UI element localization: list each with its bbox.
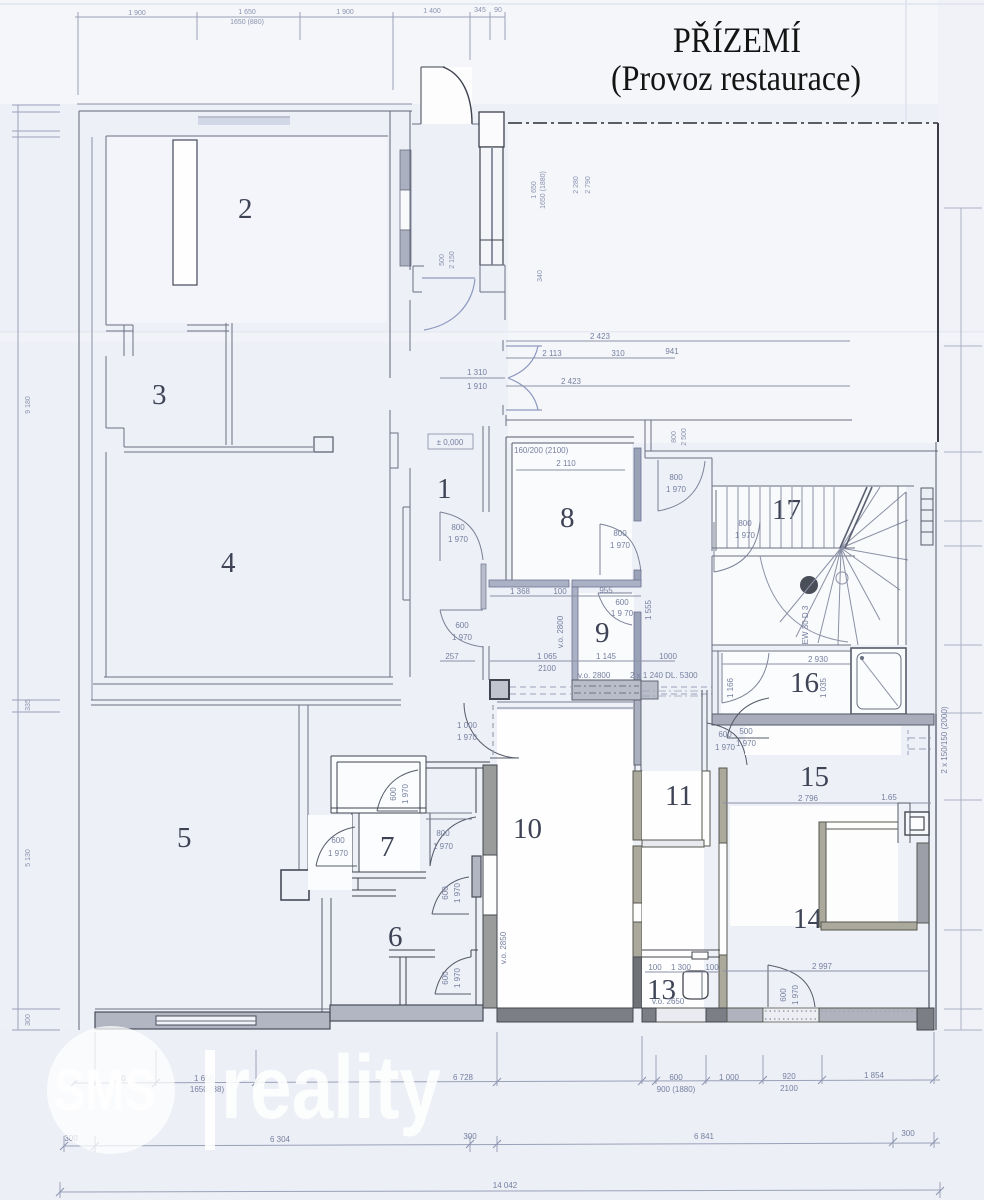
svg-text:PŘÍZEMÍ: PŘÍZEMÍ xyxy=(673,20,801,60)
svg-text:300: 300 xyxy=(463,1132,477,1141)
svg-text:1650 (880): 1650 (880) xyxy=(230,19,264,26)
svg-text:1 970: 1 970 xyxy=(715,743,736,752)
svg-text:2 930: 2 930 xyxy=(808,655,829,664)
svg-text:1 970: 1 970 xyxy=(457,733,478,742)
svg-text:100: 100 xyxy=(705,963,719,972)
svg-text:8: 8 xyxy=(560,502,575,534)
svg-text:1 065: 1 065 xyxy=(537,652,558,661)
svg-text:2 423: 2 423 xyxy=(561,377,582,386)
svg-text:2100: 2100 xyxy=(780,1084,798,1093)
svg-text:2 796: 2 796 xyxy=(798,794,819,803)
svg-text:600: 600 xyxy=(615,598,629,607)
svg-text:1 300: 1 300 xyxy=(671,963,692,972)
svg-text:5: 5 xyxy=(177,822,192,854)
svg-text:1 035: 1 035 xyxy=(819,677,828,698)
svg-text:800: 800 xyxy=(451,523,465,532)
svg-text:600: 600 xyxy=(441,886,450,900)
svg-text:1 145: 1 145 xyxy=(596,652,617,661)
svg-text:941: 941 xyxy=(665,347,679,356)
svg-text:v.o. 2800: v.o. 2800 xyxy=(578,671,611,680)
svg-text:10: 10 xyxy=(513,813,542,845)
svg-text:6: 6 xyxy=(388,921,403,953)
svg-text:1 910: 1 910 xyxy=(467,382,488,391)
svg-text:1 9 70: 1 9 70 xyxy=(611,609,634,618)
svg-text:1 900: 1 900 xyxy=(336,9,354,16)
svg-text:1 970: 1 970 xyxy=(453,967,462,988)
svg-text:345: 345 xyxy=(474,7,486,14)
svg-text:600: 600 xyxy=(331,836,345,845)
svg-text:1 650: 1 650 xyxy=(531,181,538,199)
svg-text:1 310: 1 310 xyxy=(467,368,488,377)
svg-text:600: 600 xyxy=(455,621,469,630)
svg-text:2 500: 2 500 xyxy=(681,428,688,446)
svg-text:1 368: 1 368 xyxy=(510,587,531,596)
svg-text:300: 300 xyxy=(901,1129,915,1138)
svg-text:2 997: 2 997 xyxy=(812,962,833,971)
svg-text:(Provoz restaurace): (Provoz restaurace) xyxy=(611,58,861,98)
svg-text:11: 11 xyxy=(665,780,693,812)
svg-text:2 x 150/150 (2000): 2 x 150/150 (2000) xyxy=(940,706,949,773)
svg-text:SMS: SMS xyxy=(54,1058,156,1123)
svg-text:100: 100 xyxy=(553,587,567,596)
svg-text:1 970: 1 970 xyxy=(666,485,687,494)
svg-text:9 180: 9 180 xyxy=(25,396,32,414)
svg-text:500: 500 xyxy=(739,727,753,736)
svg-text:3: 3 xyxy=(152,379,167,411)
svg-text:5 130: 5 130 xyxy=(25,849,32,867)
svg-text:2 110: 2 110 xyxy=(556,459,576,468)
svg-text:1 555: 1 555 xyxy=(644,599,653,620)
svg-text:2 423: 2 423 xyxy=(590,332,611,341)
svg-text:v.o. 2650: v.o. 2650 xyxy=(652,997,685,1006)
svg-text:1 970: 1 970 xyxy=(453,882,462,903)
svg-text:600: 600 xyxy=(441,971,450,985)
svg-text:300: 300 xyxy=(25,1014,32,1026)
svg-text:955: 955 xyxy=(599,586,613,595)
svg-text:335: 335 xyxy=(25,699,32,711)
svg-text:1 970: 1 970 xyxy=(448,535,469,544)
svg-text:2 790: 2 790 xyxy=(585,176,592,194)
svg-text:1 970: 1 970 xyxy=(328,849,349,858)
svg-text:1 970: 1 970 xyxy=(401,783,410,804)
svg-text:2 113: 2 113 xyxy=(542,349,562,358)
svg-text:100: 100 xyxy=(648,963,662,972)
svg-text:1.65: 1.65 xyxy=(881,793,897,802)
svg-text:800: 800 xyxy=(671,431,678,443)
svg-text:9: 9 xyxy=(595,617,610,649)
svg-text:1 970: 1 970 xyxy=(610,541,631,550)
svg-text:2: 2 xyxy=(238,193,253,225)
svg-text:1650 (1880): 1650 (1880) xyxy=(540,171,547,209)
svg-text:600: 600 xyxy=(389,787,398,801)
svg-text:900 (1880): 900 (1880) xyxy=(657,1085,696,1094)
svg-text:1 970: 1 970 xyxy=(433,842,454,851)
svg-text:600: 600 xyxy=(669,1073,683,1082)
svg-text:800: 800 xyxy=(613,529,627,538)
svg-text:v.o. 2800: v.o. 2800 xyxy=(556,615,565,648)
svg-text:500: 500 xyxy=(439,254,446,266)
svg-text:14 042: 14 042 xyxy=(493,1181,518,1190)
svg-text:257: 257 xyxy=(445,652,459,661)
svg-text:1 166: 1 166 xyxy=(726,677,735,698)
svg-text:1 970: 1 970 xyxy=(735,531,756,540)
svg-text:EW 30 D 3: EW 30 D 3 xyxy=(801,605,810,644)
svg-text:6 841: 6 841 xyxy=(694,1132,715,1141)
svg-text:v.o. 2850: v.o. 2850 xyxy=(499,931,508,964)
svg-text:600: 600 xyxy=(779,988,788,1002)
svg-text:16: 16 xyxy=(790,667,819,699)
svg-text:310: 310 xyxy=(611,349,625,358)
svg-text:1 854: 1 854 xyxy=(864,1071,885,1080)
svg-text:2100: 2100 xyxy=(538,664,556,673)
svg-text:90: 90 xyxy=(494,7,502,14)
svg-text:160/200 (2100): 160/200 (2100) xyxy=(514,446,569,455)
svg-text:1 400: 1 400 xyxy=(423,8,441,15)
svg-text:4: 4 xyxy=(221,547,236,579)
svg-text:920: 920 xyxy=(782,1072,796,1081)
svg-text:340: 340 xyxy=(537,270,544,282)
svg-text:800: 800 xyxy=(436,829,450,838)
svg-text:1 000: 1 000 xyxy=(719,1073,740,1082)
svg-text:2 x 1 240 DL. 5300: 2 x 1 240 DL. 5300 xyxy=(630,671,698,680)
svg-text:1 970: 1 970 xyxy=(791,984,800,1005)
svg-text:1: 1 xyxy=(437,473,452,505)
svg-text:800: 800 xyxy=(738,519,752,528)
svg-text:800: 800 xyxy=(669,473,683,482)
svg-text:1 970: 1 970 xyxy=(736,739,757,748)
svg-text:15: 15 xyxy=(800,761,829,793)
svg-text:1 000: 1 000 xyxy=(457,721,478,730)
svg-text:2 280: 2 280 xyxy=(573,176,580,194)
svg-text:1 900: 1 900 xyxy=(128,10,146,17)
svg-text:± 0,000: ± 0,000 xyxy=(437,438,464,447)
svg-text:7: 7 xyxy=(380,831,395,863)
svg-text:reality: reality xyxy=(221,1038,441,1138)
svg-text:6 728: 6 728 xyxy=(453,1073,474,1082)
svg-text:17: 17 xyxy=(772,494,801,526)
svg-text:1000: 1000 xyxy=(659,652,677,661)
svg-text:14: 14 xyxy=(793,903,823,935)
svg-text:1 970: 1 970 xyxy=(452,633,473,642)
svg-text:1 650: 1 650 xyxy=(238,9,256,16)
svg-text:2 150: 2 150 xyxy=(449,251,456,269)
